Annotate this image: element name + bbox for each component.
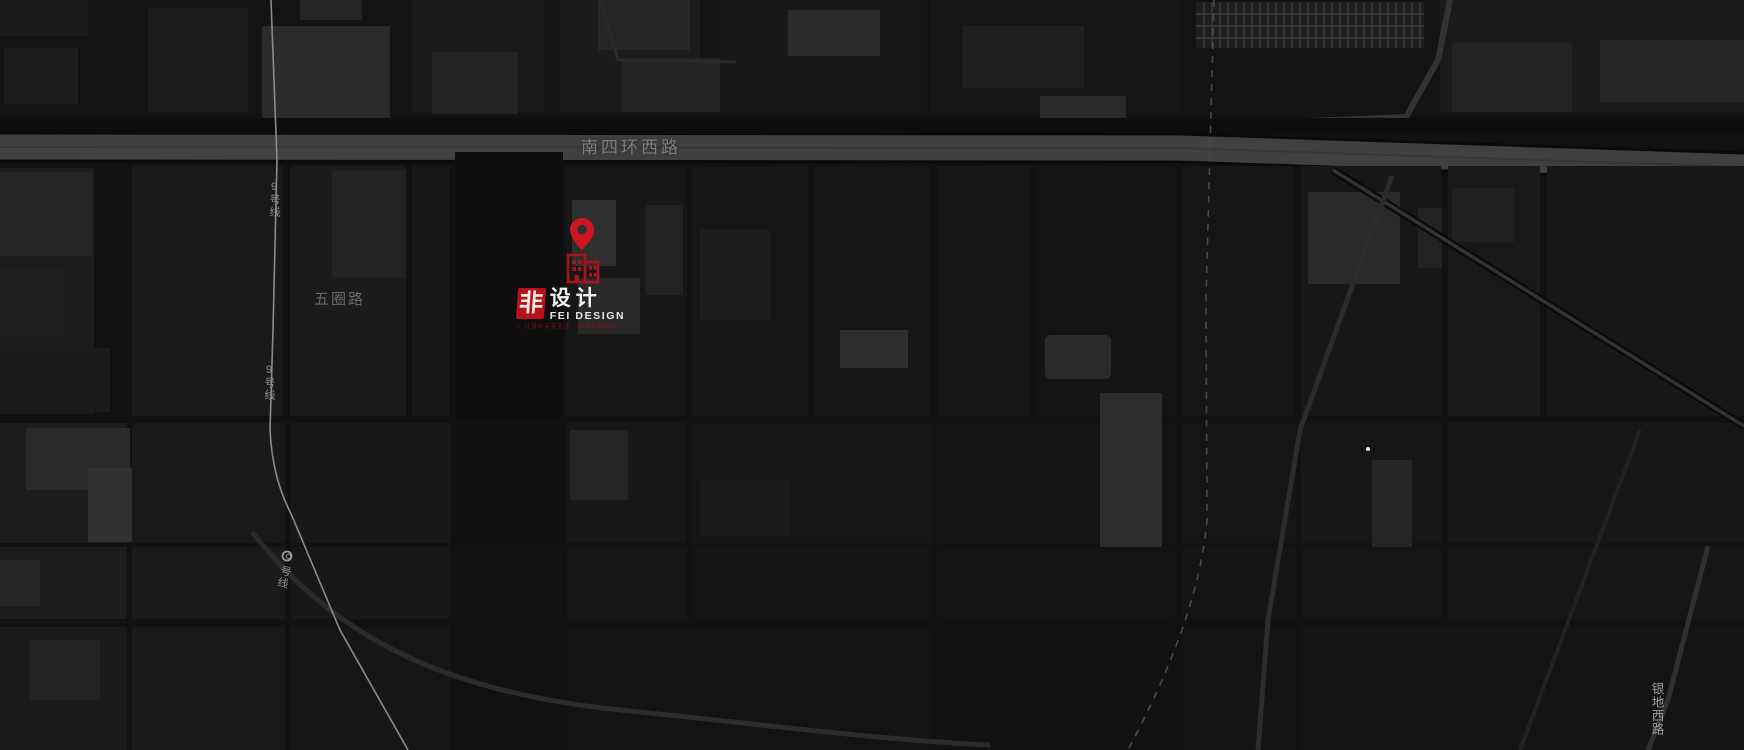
- pin-block: [455, 152, 563, 418]
- road-label-ring-road: 南四环西路: [581, 133, 681, 158]
- map-canvas[interactable]: 南四环西路 五圈路 9号线 9号线 9号线 银地西路: [0, 0, 1744, 750]
- metro-line9-label-2: 9号线: [263, 364, 274, 401]
- metro-line9-label-1: 9号线: [268, 181, 279, 218]
- road-label-yindi-road: 银地西路: [1650, 682, 1663, 736]
- poi-dot: [1366, 447, 1370, 451]
- map-blocks-top: [0, 0, 1744, 130]
- grid-complex: [1196, 2, 1424, 48]
- map-base-svg: [0, 0, 1744, 750]
- road-label-wuquan-road: 五圈路: [314, 288, 365, 309]
- map-blocks-main: [0, 152, 1744, 750]
- location-pin-icon[interactable]: [570, 218, 594, 250]
